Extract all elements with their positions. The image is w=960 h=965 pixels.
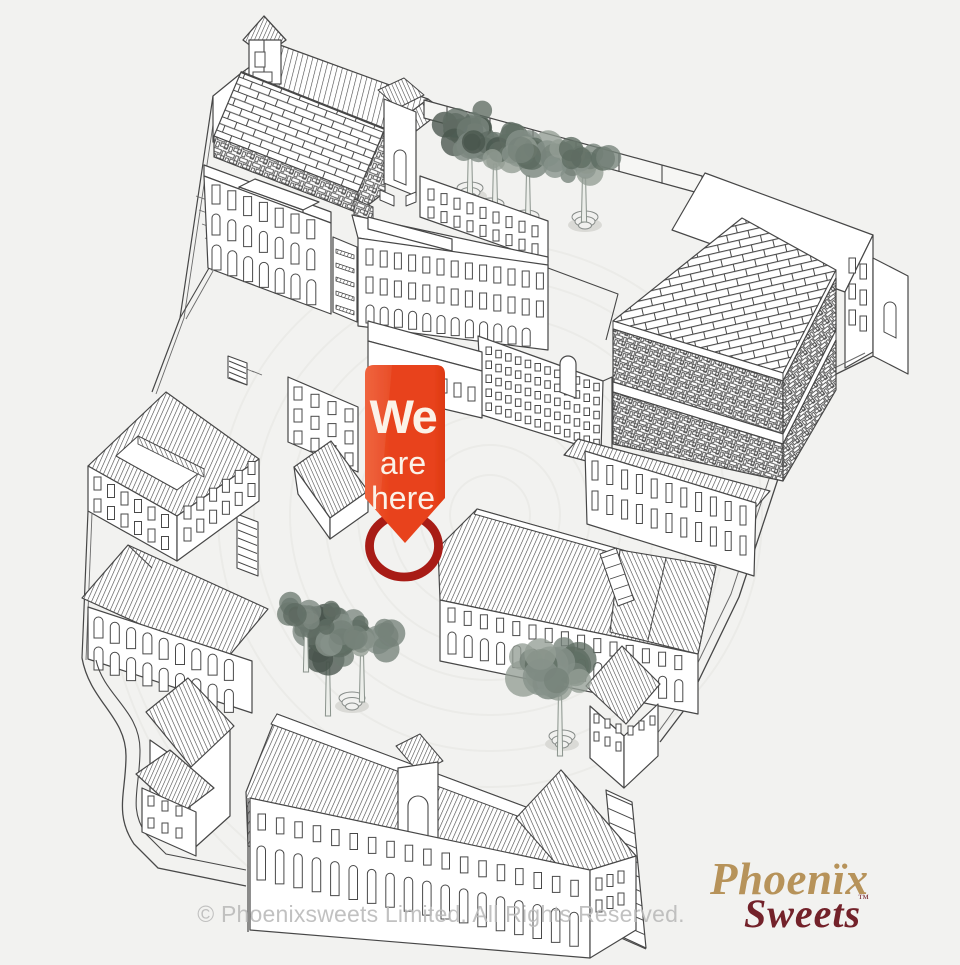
svg-text:© Phoenixsweets Limited. All R: © Phoenixsweets Limited. All Rights Rese… [197, 901, 684, 927]
svg-text:™: ™ [858, 893, 869, 905]
svg-text:here: here [371, 480, 435, 516]
svg-text:are: are [380, 445, 426, 481]
svg-text:We: We [370, 390, 437, 443]
svg-text:Sweets: Sweets [744, 891, 861, 936]
